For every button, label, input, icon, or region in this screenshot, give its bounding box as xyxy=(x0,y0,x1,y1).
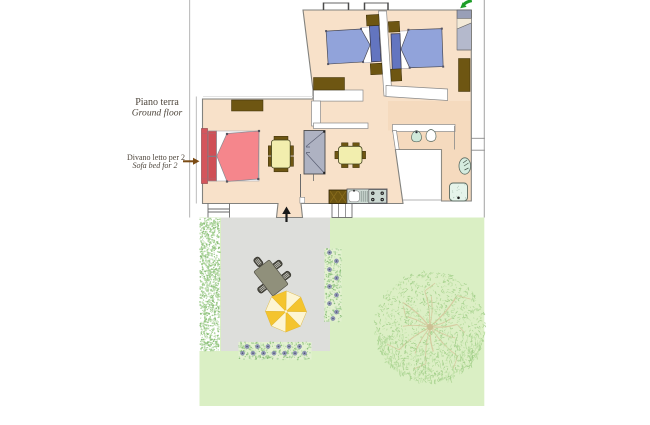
svg-text:Sofa bed for 2: Sofa bed for 2 xyxy=(132,161,177,170)
svg-text:Piano terra: Piano terra xyxy=(135,97,179,108)
svg-text:Ground floor: Ground floor xyxy=(132,108,183,119)
